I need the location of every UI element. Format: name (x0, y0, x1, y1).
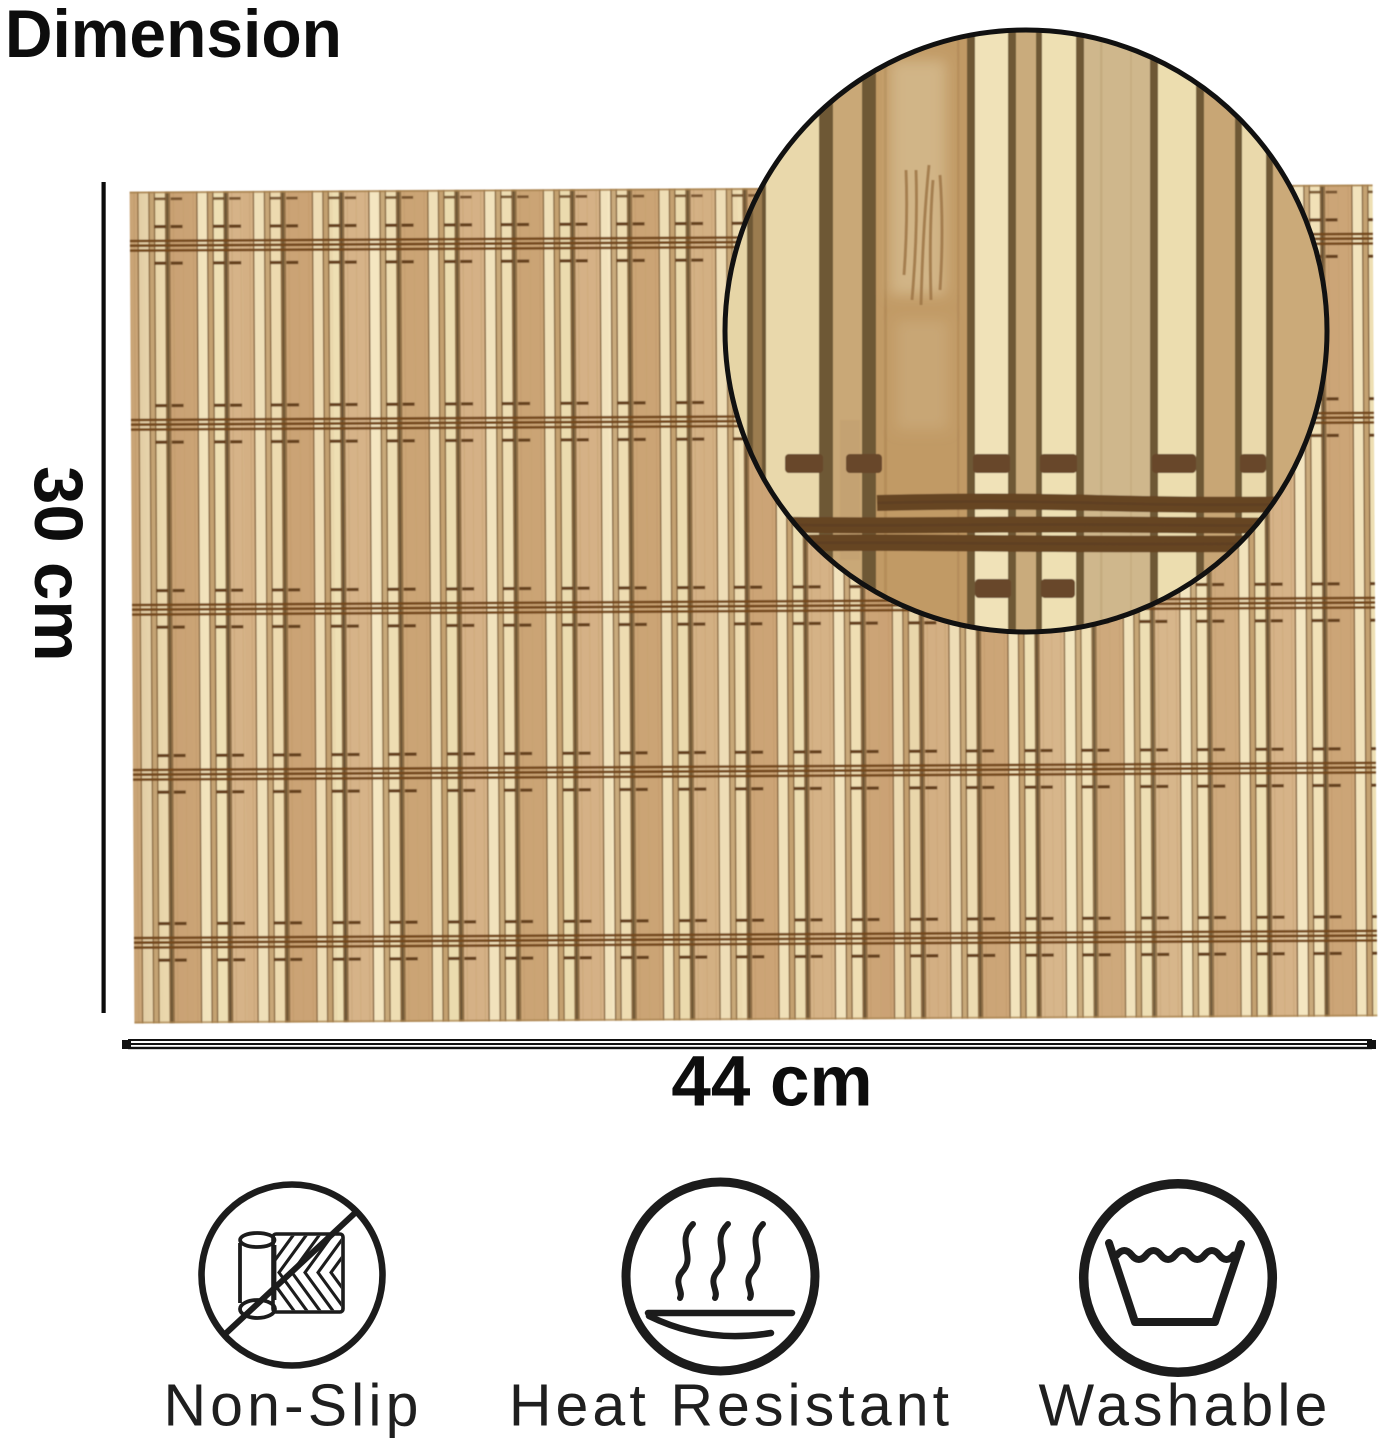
svg-text:Washable: Washable (1039, 1373, 1332, 1439)
svg-text:Non-Slip: Non-Slip (163, 1373, 422, 1439)
svg-text:30 cm: 30 cm (20, 466, 97, 662)
svg-text:44 cm: 44 cm (671, 1043, 872, 1122)
svg-text:Dimension: Dimension (5, 0, 342, 72)
svg-text:Heat Resistant: Heat Resistant (509, 1373, 953, 1439)
